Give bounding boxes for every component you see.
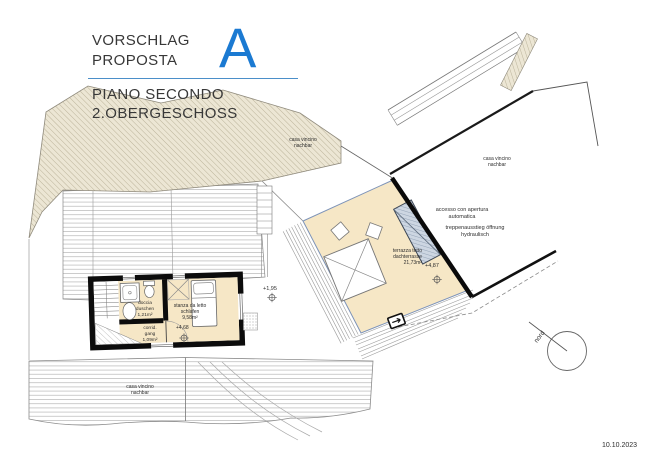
shaft-dotted-square [244, 313, 258, 330]
title-divider [88, 78, 298, 79]
label-corridor: corrid. gang 1,09m² [134, 326, 166, 344]
label-neighbor-top-left: casa vincino nachbar [263, 137, 343, 149]
label-shower: doccia duschen 1,21m² [129, 301, 161, 319]
title-floor-de: 2.OBERGESCHOSS [92, 105, 238, 123]
neighbor-house-top-right [388, 32, 598, 174]
title-floor-it: PIANO SECONDO [92, 86, 224, 104]
variant-letter: A [219, 20, 256, 76]
label-level-bedroom: +4,68 [176, 325, 189, 331]
label-neighbor-bottom: casa vincino nachbar [100, 384, 180, 396]
label-access: accesso con apertura automatica [412, 207, 512, 220]
label-level-mid: +1,95 [263, 286, 277, 293]
hatched-strip [500, 33, 537, 90]
shower-tray [120, 283, 140, 303]
title-proposal-it: PROPOSTA [92, 52, 177, 70]
east-boundary-wall [472, 251, 556, 297]
label-terrace: terrazza tetto dachterrasse 21,73m² [356, 248, 422, 266]
roof-terrace [283, 178, 558, 359]
label-stair-exit: treppenausstieg öffnung hydraulisch [415, 225, 535, 238]
title-proposal-de: VORSCHLAG [92, 32, 190, 50]
label-bedroom: stanza da letto schlafen 9,58m² [160, 303, 220, 321]
label-date: 10.10.2023 [602, 442, 637, 451]
floor-plan-page: VORSCHLAG PROPOSTA A PIANO SECONDO 2.OBE… [0, 0, 650, 459]
level-symbol-mid [267, 293, 277, 303]
label-neighbor-top-right: casa vincino nachbar [457, 156, 537, 168]
north-arrow [529, 322, 587, 371]
toilet [144, 281, 156, 298]
neighbor-roof-bottom [29, 358, 373, 441]
label-level-terrace: +4,87 [425, 263, 439, 270]
